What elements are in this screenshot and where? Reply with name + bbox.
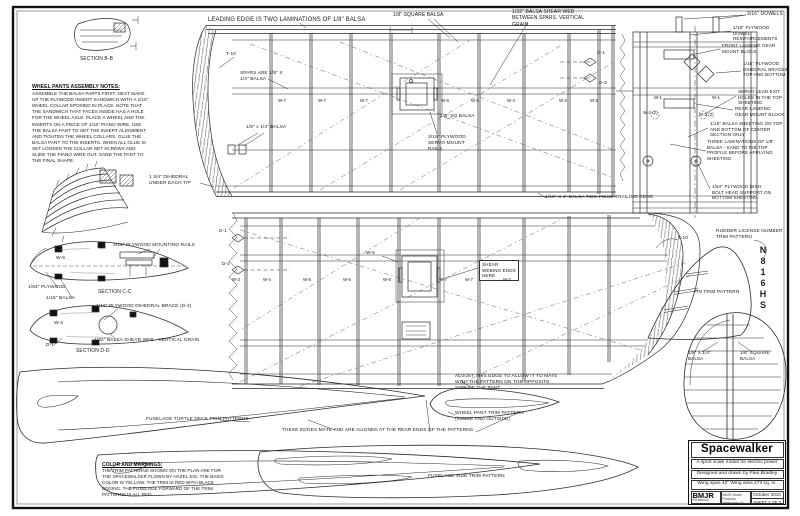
rib-label: W-2 (2) (699, 113, 714, 117)
label-wheel-pant-trim: WHEEL PANT TRIM PATTERN (INSIDE AND OUTS… (455, 411, 537, 423)
label-adjust-edge: ADJUST THIS EDGE TO ALLOW IT TO MATE WIT… (455, 374, 561, 392)
break-symbol (616, 34, 633, 181)
label-w6-section-cc: W-6 (56, 256, 65, 262)
label-mounting-rails: 3/16" PLYWOOD MOUNTING RAILS (113, 243, 195, 249)
kit-number: Kit #xxxxx (693, 499, 719, 503)
label-section-dd: SECTION D-D (76, 348, 110, 354)
label-t10-top: T-10 (226, 52, 236, 58)
plan-credit: Designed and drawn by Paul Bradley (691, 470, 784, 480)
label-square-balsa-top: 1/8" SQUARE BALSA (393, 12, 443, 18)
label-dowels: 3/16" DOWELS (747, 11, 783, 17)
label-d1-section-dd: D-1 (46, 343, 54, 349)
label-t10-bottom: T-10 (678, 236, 688, 242)
label-three-laminations: THREE LAMINATIONS OF 1/8" BALSA - SAND T… (707, 139, 779, 162)
section-bb-drawing (75, 16, 138, 50)
label-dihedral-tip: 1 3/4" DIHEDRAL UNDER EACH TIP (149, 175, 199, 187)
bottom-wing-drawing (229, 213, 700, 389)
label-rudder-balsa-18x14: 1/8" X 1/4" BALSA (688, 350, 720, 361)
wheel-pant-exploded-drawing (42, 161, 133, 242)
rib-label: W-7 (465, 278, 473, 282)
top-wing-drawing (193, 19, 616, 197)
title-block: Spacewalker A sport scale model for elec… (688, 440, 786, 505)
rib-label: W-4 (507, 99, 515, 103)
plan-subtitle: A sport scale model for electric power (691, 459, 784, 469)
rib-label: W-5 (471, 99, 479, 103)
license-char: 1 (756, 268, 770, 277)
label-leading-edge: LEADING EDGE IS TWO LAMINATIONS OF 1/8" … (208, 17, 365, 25)
plan-linework (0, 0, 800, 516)
rib-label: W-6 (441, 99, 449, 103)
label-sq-balsa-servo: 1/8" SQ BALSA (440, 114, 475, 120)
label-front-landing-gear: FRONT LANDING GEAR MOUNT BLOCK (722, 43, 777, 54)
label-these-edges: THESE EDGES MATE AND ARE ALIGNED AT THE … (282, 428, 473, 434)
label-balsa-18x14: 1/8" x 1/4" BALSA (246, 125, 286, 131)
label-d2-top: D-2 (599, 81, 607, 87)
wheel-pants-notes-body: ASSEMBLE THE BALSA PARTS FIRST. NEXT MAK… (32, 91, 150, 164)
label-balsa-116: 1/16" BALSA (46, 296, 75, 302)
license-char: S (756, 301, 770, 310)
license-char: H (756, 290, 770, 299)
label-dihedral-brace-d2: 1/16" PLYWOOD DIHEDRAL BRACE (D-2) (96, 304, 191, 310)
plan-date: October 2010 (752, 492, 783, 500)
label-fin-trim: FIN TRIM PATTERN (694, 290, 739, 296)
address-line-1: BMJR Model Products (723, 493, 749, 501)
label-side-trim: FUSELAGE SIDE TRIM PATTERN (428, 474, 505, 480)
label-turtle-deck: FUSELAGE TURTLE DECK TRIM PATTERNS (146, 417, 249, 423)
license-char: 6 (756, 279, 770, 288)
label-dihedral-braces: 1/16" PLYWOOD DIHEDRAL BRACES TOP AND BO… (743, 61, 789, 78)
rib-label: W-2 (590, 99, 598, 103)
label-dowel-reinforcements: 1/16" PLYWOOD DOWEL REINFORCEMENTS (733, 25, 785, 42)
label-section-bb: SECTION B-B (80, 56, 113, 62)
address-cell: BMJR Model Products Melbourne, FL 32936 (721, 491, 751, 504)
label-d2-bottom-wing: D-2 (222, 262, 230, 268)
rib-label: W-3 (232, 278, 240, 282)
rib-label: W-1 (712, 96, 720, 100)
label-shear-web-top: 1/32" BALSA SHEAR WEB BETWEEN SPARS. VER… (512, 9, 600, 28)
date-cell: October 2010 SHEET 2 OF 2 (751, 491, 784, 504)
license-char: N (756, 246, 770, 255)
license-char: 8 (756, 257, 770, 266)
label-w5-callout: W-5 (366, 251, 375, 257)
wheel-pants-notes-title: WHEEL PANTS ASSEMBLY NOTES: (32, 84, 120, 90)
label-section-cc: SECTION C-C (98, 289, 132, 295)
color-notes-body: THE TRIM PATTERNS SHOWN ON THE PLAN ARE … (102, 468, 224, 498)
label-shear-webbing-ends: SHEAR WEBING ENDS HERE (479, 260, 519, 281)
title-block-bottom-row: BMJR Kit #xxxxx BMJR Model Products Melb… (691, 491, 784, 504)
label-rudder-sq-balsa: 1/8" SQUARE BALSA (740, 350, 772, 361)
plan-specs: Wing span 42" Wing area 273 sq. in. (691, 480, 784, 490)
label-servo-lead-exit: SERVO LEAD EXIT HOLES IN THE TOP SHEETIN… (738, 89, 790, 106)
rib-label: W-3 (559, 99, 567, 103)
rib-label: W-2 (2) (643, 111, 658, 115)
rib-label: W-4 (263, 278, 271, 282)
plan-sheet: LEADING EDGE IS TWO LAMINATIONS OF 1/8" … (0, 0, 800, 516)
label-rear-landing-gear: REAR LANDING GEAR MOUNT BLOCK (735, 106, 785, 117)
rib-label: W-1 (654, 96, 662, 100)
label-shear-web-dd: 1/32" BALSA SHEAR WEB - VERTICAL GRAIN (94, 338, 199, 344)
label-w4-section-dd: W-4 (54, 321, 63, 327)
plan-title: Spacewalker (691, 442, 784, 458)
rib-label: W-7 (503, 278, 511, 282)
sheet-number: SHEET 2 OF 2 (752, 499, 783, 503)
label-balsa-sheeting: 1/16" BALSA SHEETING ON TOP AND BOTTOM O… (710, 121, 788, 138)
rib-label: W-6 (383, 278, 391, 282)
rib-label: W-7 (278, 99, 286, 103)
rib-label: W-5 (303, 278, 311, 282)
label-d1-bottom-wing: D-1 (219, 229, 227, 235)
label-spars: SPARS ARE 1/8" X 1/4" BALSA (240, 71, 292, 83)
rib-label: W-7 (439, 278, 447, 282)
rib-label: W-6 (343, 278, 351, 282)
label-trailing-edge: 1/16" X 1" BALSA TWO PIECE TRAILING EDGE (545, 195, 653, 201)
rudder-drawing (684, 313, 786, 440)
label-rudder-license: RUDDER LICENSE NUMBER TRIM PATTERN (716, 229, 788, 241)
label-plywood-164: 1/64" PLYWOOD (28, 285, 66, 291)
label-d1-top: D-1 (597, 51, 605, 57)
address-line-2: Melbourne, FL 32936 (723, 501, 749, 504)
brand-cell: BMJR Kit #xxxxx (691, 491, 721, 504)
label-dish-bolt-support: 1/64" PLYWOOD DISH BOLT HEAD SUPPORT ON … (712, 184, 772, 201)
rib-label: W-7 (360, 99, 368, 103)
rib-label: W-7 (318, 99, 326, 103)
label-servo-mount-rails: 3/16" PLYWOOD SERVO MOUNT RAILS (428, 135, 468, 153)
fuselage-side-trim-pattern-drawing (258, 445, 638, 498)
